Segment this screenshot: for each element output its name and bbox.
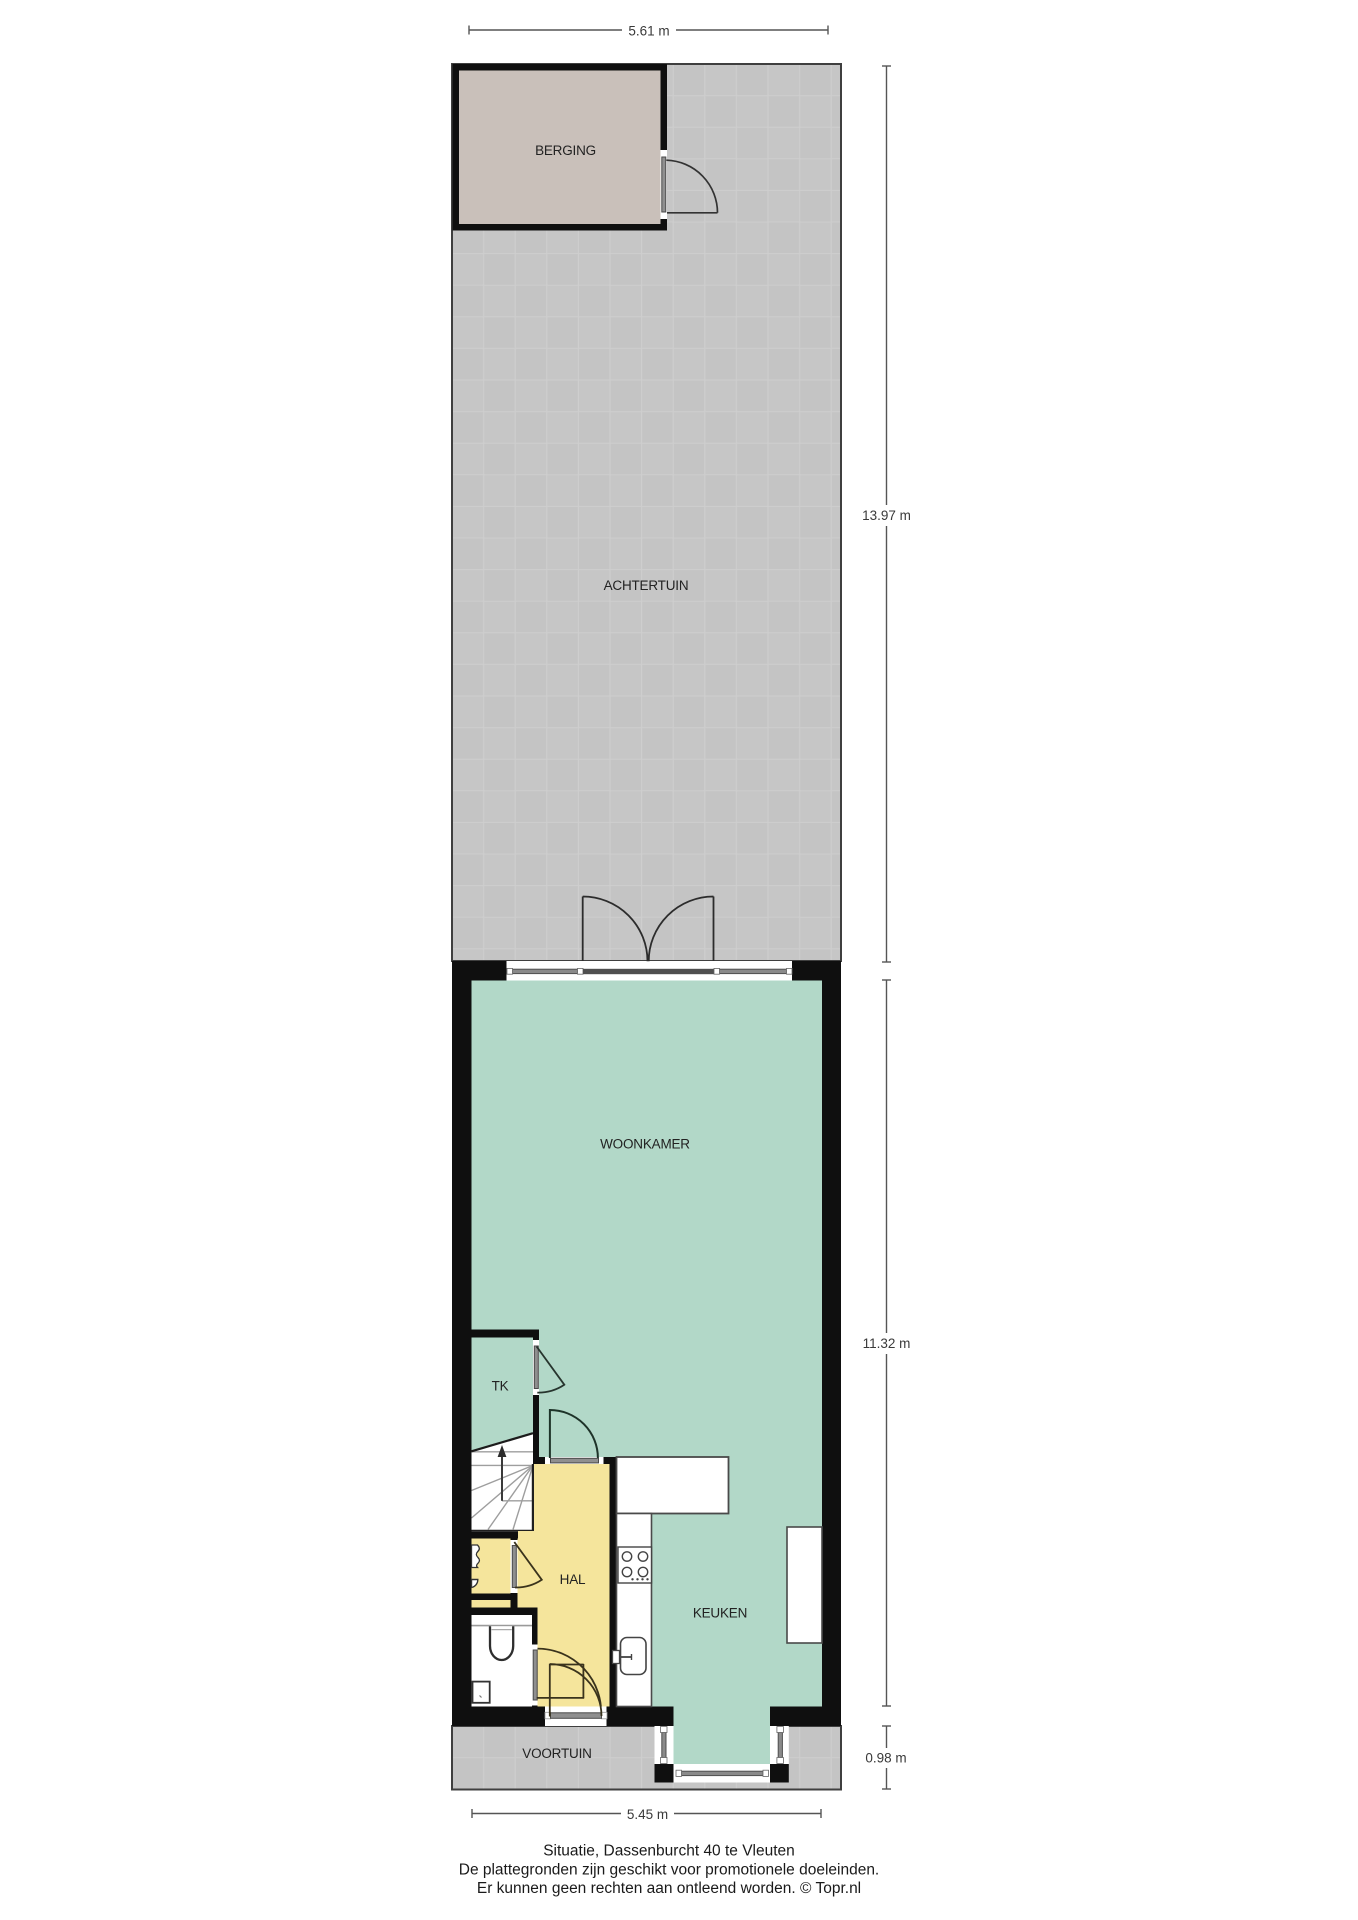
svg-text:BERGING: BERGING xyxy=(535,143,596,158)
svg-text:ACHTERTUIN: ACHTERTUIN xyxy=(604,578,689,593)
svg-text:5.45 m: 5.45 m xyxy=(627,1807,668,1822)
svg-text:De plattegronden zijn geschikt: De plattegronden zijn geschikt voor prom… xyxy=(459,1862,880,1879)
svg-text:HAL: HAL xyxy=(560,1572,586,1587)
svg-text:Er kunnen geen rechten aan ont: Er kunnen geen rechten aan ontleend word… xyxy=(477,1880,861,1897)
svg-text:KEUKEN: KEUKEN xyxy=(693,1606,747,1621)
svg-text:VOORTUIN: VOORTUIN xyxy=(522,1746,591,1761)
svg-text:Situatie, Dassenburcht 40 te V: Situatie, Dassenburcht 40 te Vleuten xyxy=(543,1843,795,1860)
svg-text:13.97 m: 13.97 m xyxy=(862,508,911,523)
svg-text:WOONKAMER: WOONKAMER xyxy=(600,1137,690,1152)
svg-text:0.98 m: 0.98 m xyxy=(865,1751,906,1766)
svg-text:5.61 m: 5.61 m xyxy=(628,24,669,39)
svg-text:11.32 m: 11.32 m xyxy=(863,1336,911,1351)
svg-text:TK: TK xyxy=(492,1379,509,1394)
